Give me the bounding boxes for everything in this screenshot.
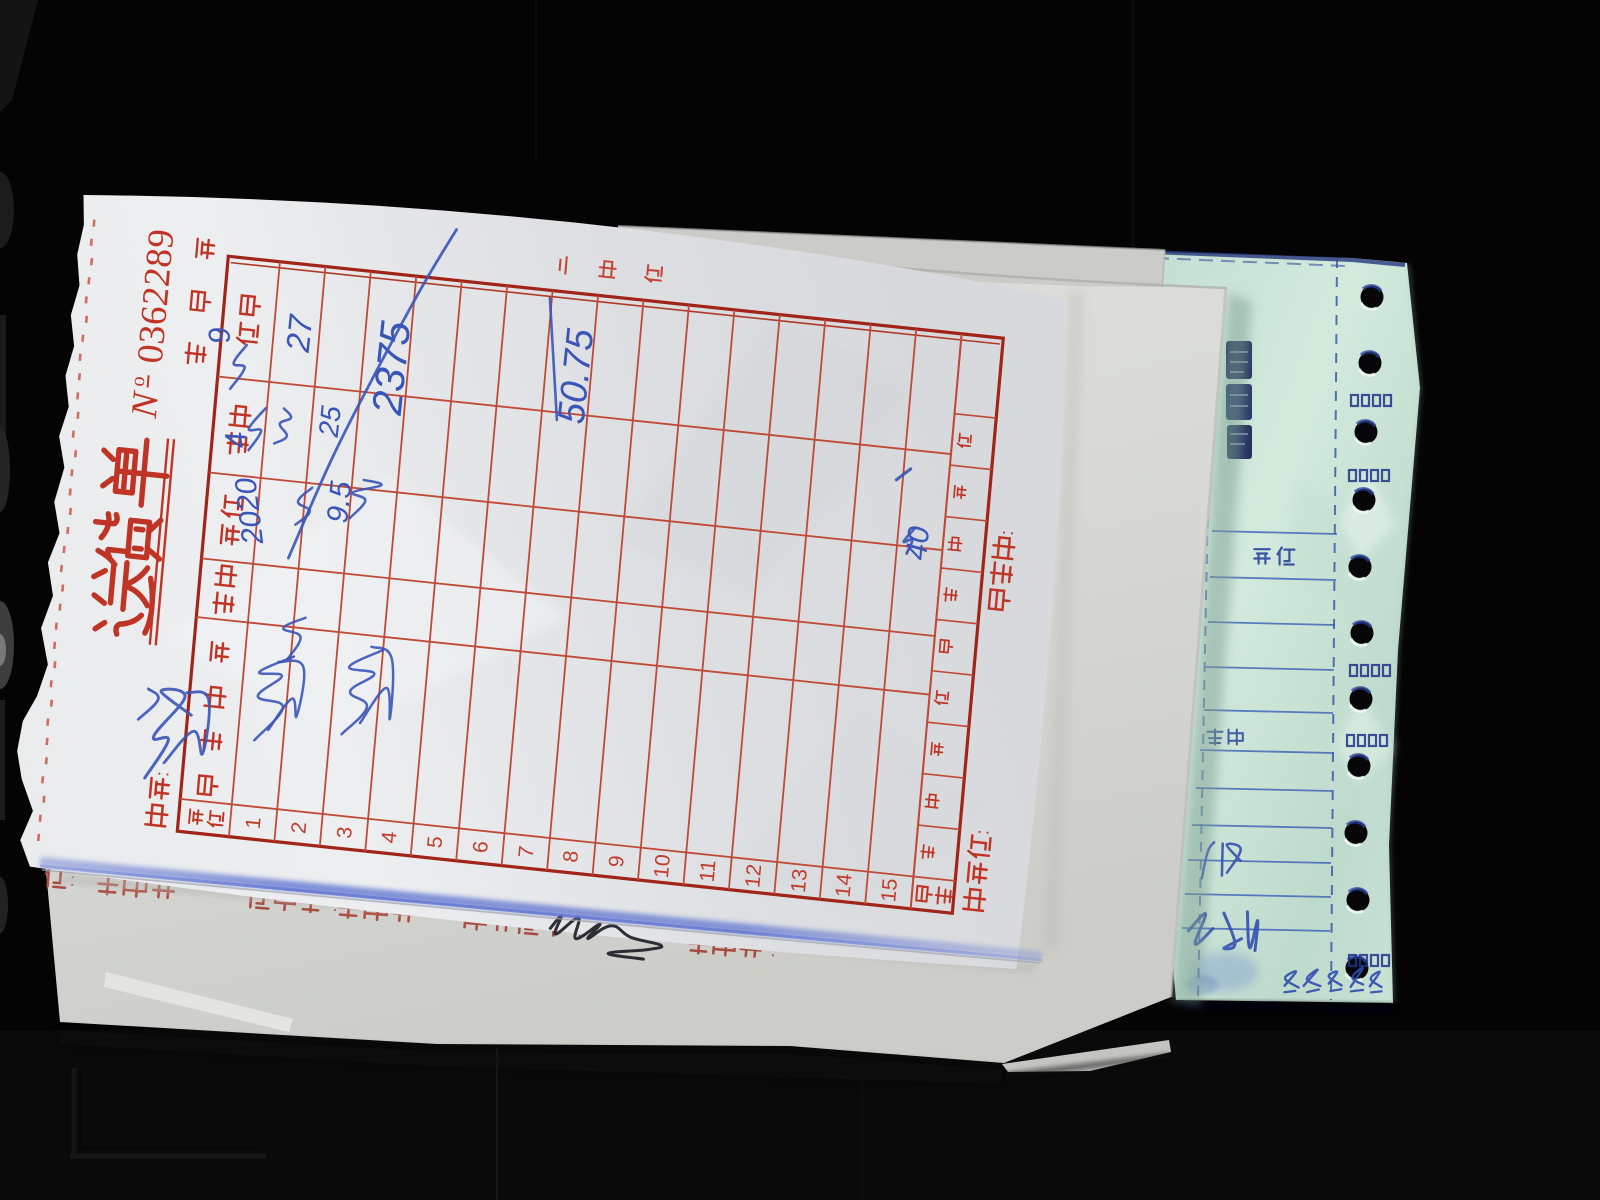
- svg-text:8: 8: [559, 849, 583, 863]
- svg-text:9: 9: [605, 854, 629, 868]
- svg-text:9.5: 9.5: [321, 479, 358, 524]
- svg-text:12: 12: [741, 863, 766, 889]
- svg-text:2: 2: [287, 821, 311, 835]
- svg-text:13: 13: [787, 868, 812, 894]
- svg-text:10: 10: [650, 853, 675, 879]
- svg-text:15: 15: [877, 877, 902, 903]
- svg-text:6: 6: [469, 840, 493, 854]
- svg-text:27: 27: [279, 312, 320, 355]
- svg-text:11: 11: [696, 859, 721, 883]
- svg-text:5: 5: [423, 835, 447, 849]
- svg-text:2375: 2375: [363, 318, 420, 417]
- svg-text:3: 3: [333, 826, 357, 840]
- svg-text:25: 25: [313, 404, 347, 440]
- svg-text:14: 14: [832, 872, 857, 898]
- svg-text:1: 1: [242, 816, 266, 830]
- svg-text:7: 7: [515, 845, 539, 859]
